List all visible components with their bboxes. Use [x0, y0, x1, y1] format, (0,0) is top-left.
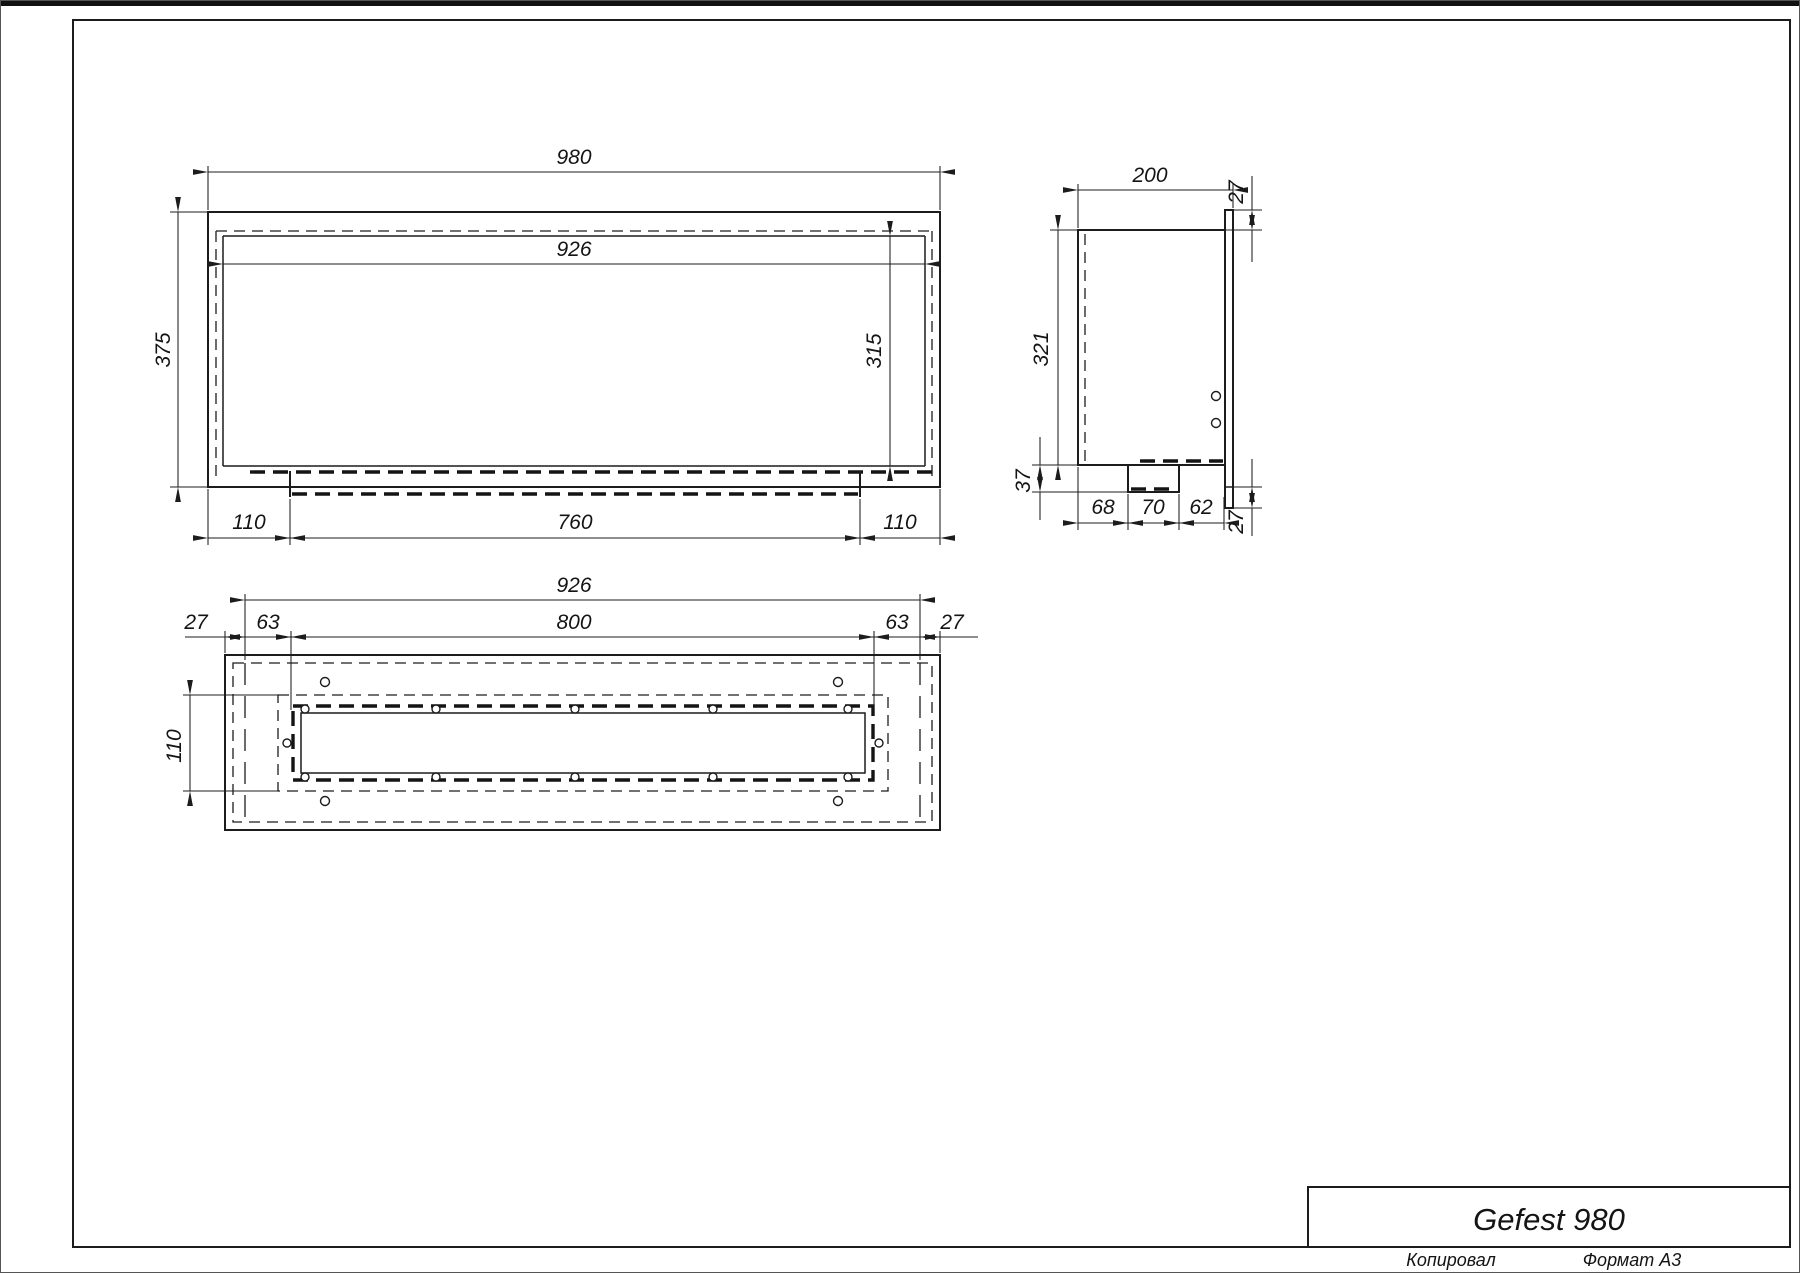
footer-copied-by: Копировал [1406, 1250, 1496, 1270]
drawing-frame [73, 20, 1790, 1247]
dim-bottom-slot-height: 110 [163, 729, 186, 763]
title-block: Gefest 980 [1308, 1187, 1790, 1247]
dim-bottom-mount-width: 800 [556, 611, 591, 634]
dim-front-overall-width: 980 [556, 146, 591, 169]
side-view: 200 27 321 37 68 70 62 27 [1012, 164, 1262, 536]
dim-side-depth: 200 [1131, 164, 1167, 187]
dim-front-inner-height: 315 [863, 333, 886, 368]
flange-hole [1212, 419, 1221, 428]
dim-side-step: 37 [1012, 468, 1035, 493]
front-view: 980 926 375 315 110 760 110 [152, 146, 940, 545]
dim-front-bottom-right: 110 [883, 511, 917, 534]
dim-side-seg-right: 62 [1189, 496, 1213, 519]
title-block-product: Gefest 980 [1473, 1202, 1625, 1237]
dim-bottom-right-wall: 63 [885, 611, 909, 634]
dim-front-overall-height: 375 [152, 332, 175, 367]
dim-side-height: 321 [1030, 331, 1053, 366]
dim-bottom-left-wall: 63 [256, 611, 280, 634]
dim-side-flange-bottom: 27 [1225, 509, 1248, 535]
dim-side-seg-left: 68 [1091, 496, 1115, 519]
drawing-sheet: 980 926 375 315 110 760 110 [0, 0, 1800, 1273]
flange-hole [1212, 392, 1221, 401]
dim-side-seg-mid: 70 [1141, 496, 1165, 519]
dim-side-flange-top: 27 [1225, 179, 1248, 205]
dim-front-bottom-left: 110 [232, 511, 266, 534]
footer-strip: Копировал Формат А3 [1406, 1250, 1681, 1270]
dim-front-inner-width: 926 [556, 238, 591, 261]
dim-front-tray-width: 760 [557, 511, 592, 534]
technical-drawing: 980 926 375 315 110 760 110 [0, 0, 1800, 1273]
footer-format: Формат А3 [1583, 1250, 1682, 1270]
dim-bottom-left-edge: 27 [183, 611, 209, 634]
dim-bottom-inner-width: 926 [556, 574, 591, 597]
bottom-view: 926 27 63 800 63 27 110 [163, 574, 978, 830]
dim-bottom-right-edge: 27 [939, 611, 965, 634]
